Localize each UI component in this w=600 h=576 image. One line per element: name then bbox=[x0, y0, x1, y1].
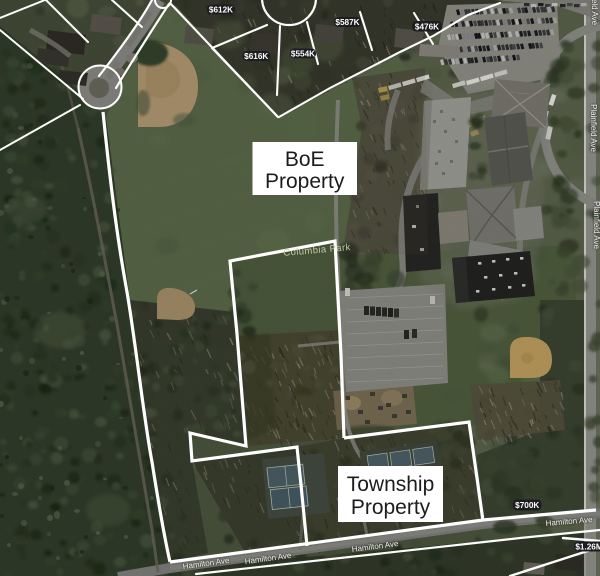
svg-text:$587K: $587K bbox=[335, 18, 359, 27]
svg-text:Township: Township bbox=[347, 473, 435, 496]
svg-text:Plainfield Ave: Plainfield Ave bbox=[589, 104, 598, 152]
svg-text:field Ave: field Ave bbox=[590, 0, 599, 26]
svg-text:Plainfield Ave: Plainfield Ave bbox=[592, 201, 600, 249]
svg-text:$612K: $612K bbox=[209, 6, 233, 15]
svg-text:$1.26M: $1.26M bbox=[575, 543, 600, 552]
svg-text:$554K: $554K bbox=[291, 49, 315, 58]
svg-text:BoE: BoE bbox=[285, 148, 325, 171]
svg-text:Property: Property bbox=[265, 170, 345, 193]
svg-text:$476K: $476K bbox=[415, 22, 439, 31]
svg-text:$700K: $700K bbox=[515, 501, 539, 510]
svg-text:Property: Property bbox=[351, 496, 431, 519]
svg-text:$616K: $616K bbox=[244, 52, 268, 61]
